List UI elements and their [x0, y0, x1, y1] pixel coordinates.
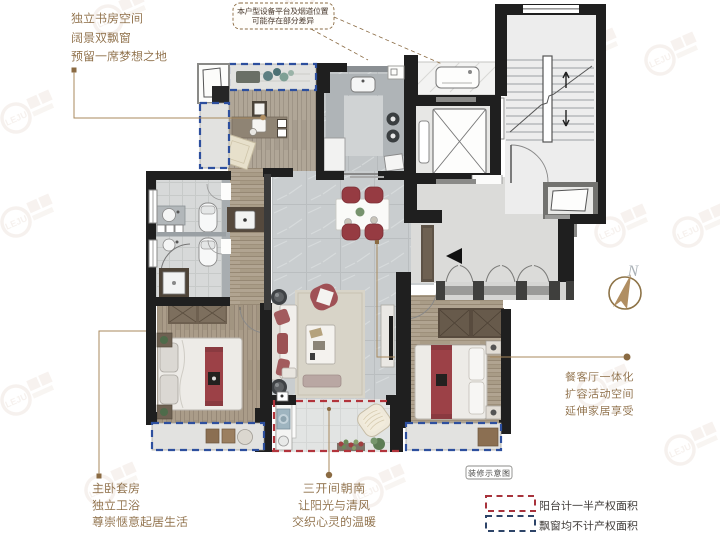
svg-text:LEJU: LEJU [668, 441, 693, 459]
svg-text:LEJU: LEJU [88, 481, 113, 499]
svg-text:LEJU: LEJU [4, 109, 29, 127]
svg-text:LEJU: LEJU [676, 223, 701, 241]
svg-text:LEJU: LEJU [4, 213, 29, 231]
svg-text:LEJU: LEJU [598, 223, 623, 241]
svg-text:LEJU: LEJU [4, 391, 29, 409]
svg-text:N: N [627, 263, 640, 280]
svg-text:LEJU: LEJU [648, 51, 673, 69]
